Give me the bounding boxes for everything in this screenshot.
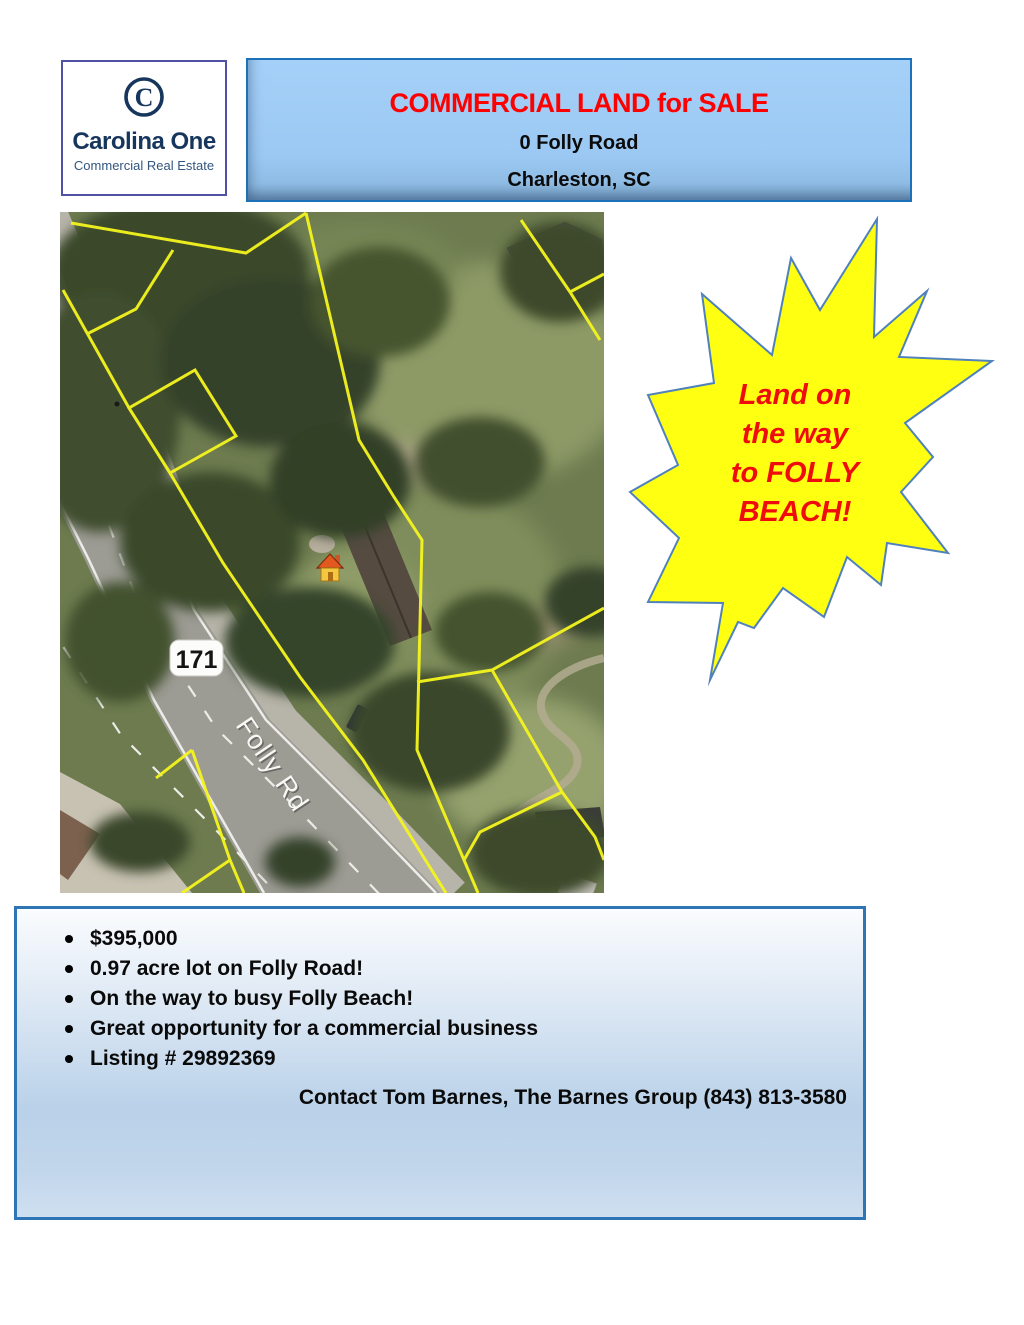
bullet-lot-size: 0.97 acre lot on Folly Road! bbox=[63, 954, 863, 984]
starburst-text: Land on the way to FOLLY BEACH! bbox=[680, 376, 910, 532]
contact-info: Contact Tom Barnes, The Barnes Group (84… bbox=[17, 1086, 863, 1110]
aerial-map-photo: 171 Folly Rd Folly Rd bbox=[60, 212, 604, 893]
bullet-opportunity: Great opportunity for a commercial busin… bbox=[63, 1014, 863, 1044]
bullet-price: $395,000 bbox=[63, 924, 863, 954]
bullet-listing-number: Listing # 29892369 bbox=[63, 1044, 863, 1074]
logo-company-name: Carolina One bbox=[72, 128, 215, 156]
starburst-line-4: BEACH! bbox=[680, 493, 910, 532]
starburst-line-1: Land on bbox=[680, 376, 910, 415]
aerial-map-scene: 171 Folly Rd Folly Rd bbox=[60, 212, 604, 893]
details-bullet-list: $395,000 0.97 acre lot on Folly Road! On… bbox=[17, 909, 863, 1074]
svg-text:171: 171 bbox=[176, 646, 218, 674]
carolina-one-circle-c-icon: C bbox=[123, 76, 165, 118]
patio-blob bbox=[309, 535, 335, 553]
svg-text:C: C bbox=[135, 83, 154, 112]
details-panel: $395,000 0.97 acre lot on Folly Road! On… bbox=[14, 906, 866, 1220]
company-logo: C Carolina One Commercial Real Estate bbox=[61, 60, 227, 196]
flyer-title: COMMERCIAL LAND for SALE bbox=[248, 88, 910, 119]
route-shield: 171 bbox=[170, 640, 223, 676]
bullet-location: On the way to busy Folly Beach! bbox=[63, 984, 863, 1014]
starburst-line-2: the way bbox=[680, 415, 910, 454]
header-banner: COMMERCIAL LAND for SALE 0 Folly Road Ch… bbox=[246, 58, 912, 202]
mailbox-dot bbox=[115, 402, 120, 407]
starburst-line-3: to FOLLY bbox=[680, 454, 910, 493]
flyer-page: C Carolina One Commercial Real Estate CO… bbox=[0, 0, 1024, 1325]
property-city-state: Charleston, SC bbox=[248, 169, 910, 192]
starburst-callout: Land on the way to FOLLY BEACH! bbox=[620, 212, 1012, 704]
logo-tagline: Commercial Real Estate bbox=[74, 158, 214, 173]
property-address: 0 Folly Road bbox=[248, 132, 910, 155]
